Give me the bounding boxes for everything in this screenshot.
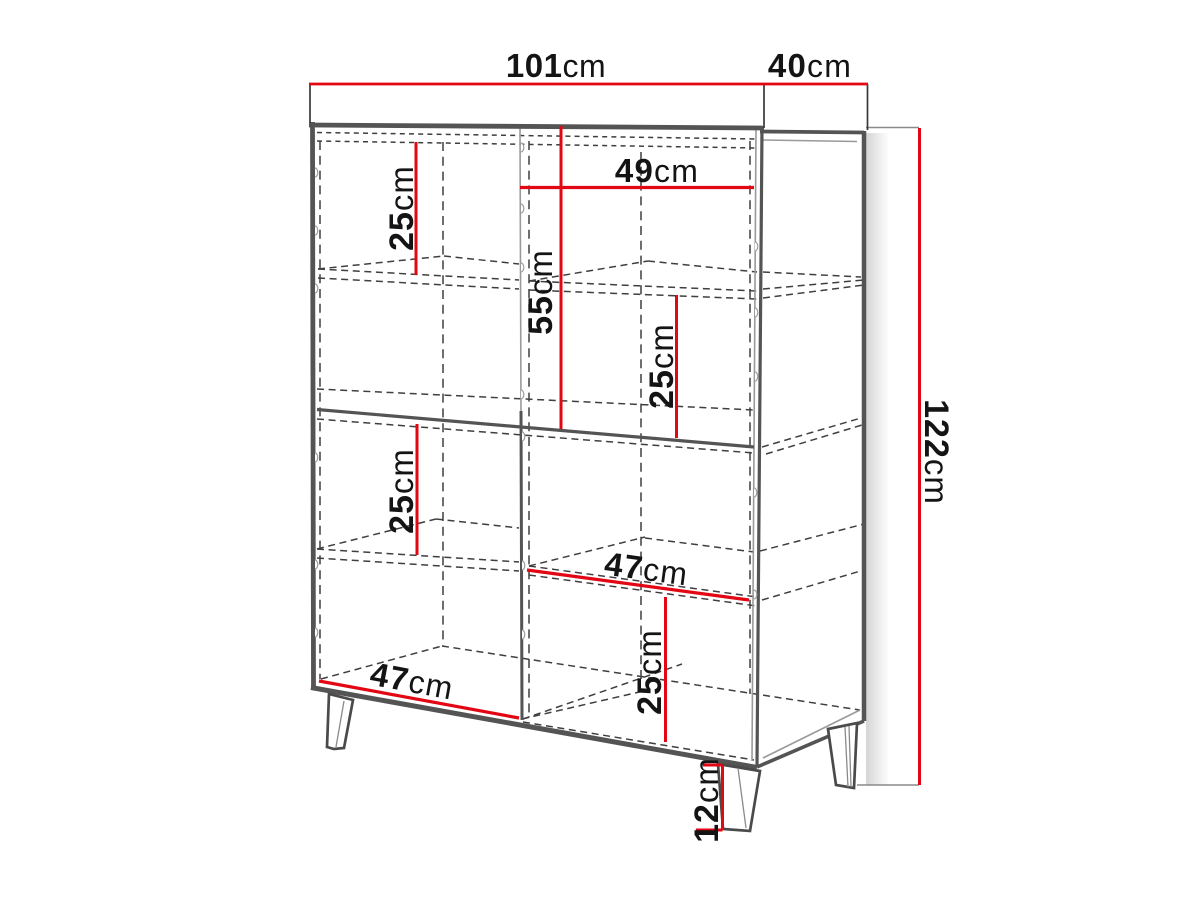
svg-text:55cm: 55cm	[522, 249, 560, 335]
svg-text:122cm: 122cm	[917, 399, 955, 505]
svg-text:25cm: 25cm	[383, 165, 421, 251]
svg-text:40cm: 40cm	[768, 47, 852, 84]
svg-text:12cm: 12cm	[688, 757, 726, 843]
svg-text:49cm: 49cm	[615, 152, 699, 189]
svg-text:25cm: 25cm	[643, 323, 681, 409]
svg-text:25cm: 25cm	[383, 448, 421, 534]
svg-text:25cm: 25cm	[631, 629, 669, 715]
svg-text:101cm: 101cm	[506, 47, 606, 84]
